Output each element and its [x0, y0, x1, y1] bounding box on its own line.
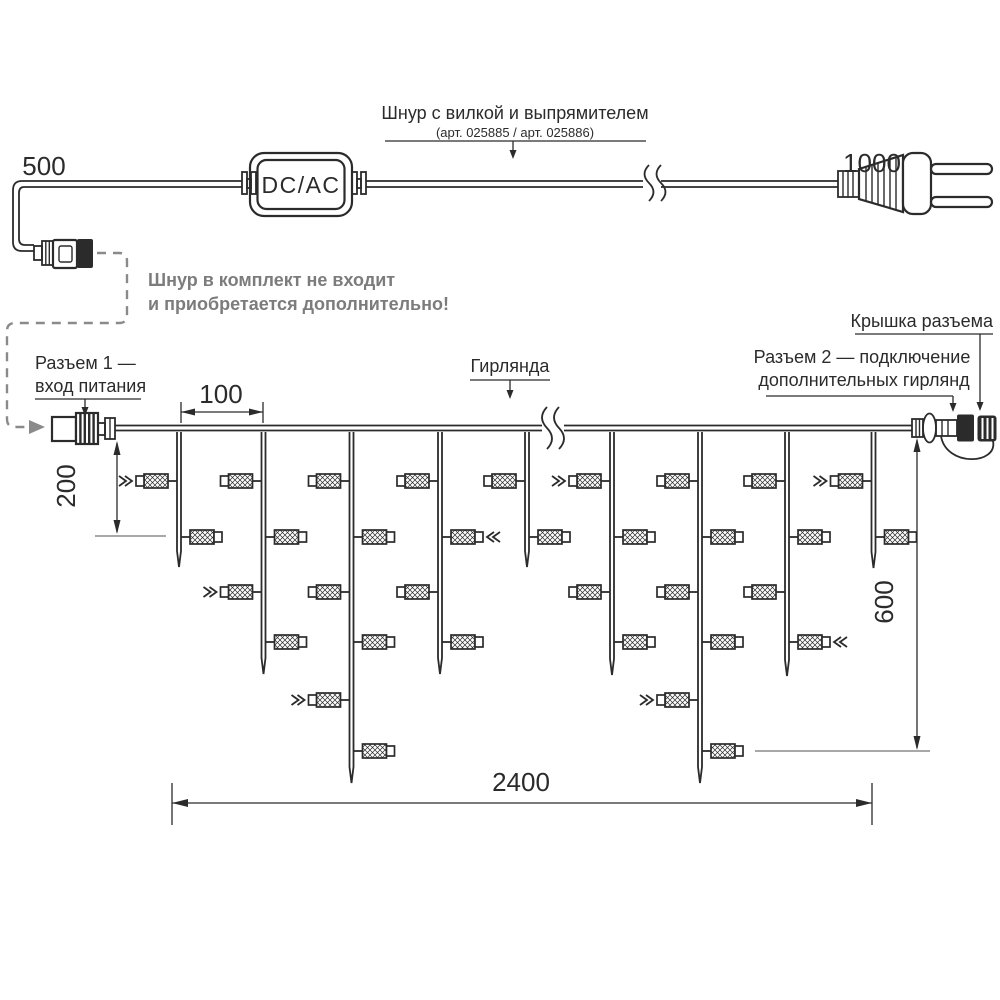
cable-gland-right-icon [352, 172, 366, 194]
connector1-callout: Разъем 1 — вход питания [35, 353, 146, 416]
dim-2400: 2400 [492, 767, 550, 797]
garland-callout: Гирлянда [470, 356, 550, 399]
connector2-label-line1: Разъем 2 — подключение [754, 347, 971, 367]
led-lamp-icon [317, 585, 341, 599]
led-lamp-icon [839, 474, 863, 488]
led-lamp-icon [752, 585, 776, 599]
lamp-cap-icon [387, 637, 395, 647]
connector1-label-line1: Разъем 1 — [35, 353, 136, 373]
diagram-page: DC/AC [0, 0, 1000, 1000]
dim-200: 200 [51, 464, 81, 507]
lamp-cap-icon [387, 532, 395, 542]
flash-marker-icon [119, 476, 132, 486]
lamp-cap-icon [299, 532, 307, 542]
led-lamp-icon [752, 474, 776, 488]
led-lamp-icon [317, 693, 341, 707]
garland-section: Разъем 1 — вход питания Гирлянда Разъем … [35, 311, 997, 825]
connector-cap-icon [978, 416, 997, 442]
flash-marker-icon [552, 476, 565, 486]
connector2-label-line2: дополнительных гирлянд [758, 370, 970, 390]
lamp-cap-icon [735, 532, 743, 542]
lamp-cap-icon [562, 532, 570, 542]
lamp-cap-icon [387, 746, 395, 756]
wire-break-symbol [542, 407, 564, 449]
led-lamp-icon [538, 530, 562, 544]
led-lamp-icon [229, 585, 253, 599]
led-lamp-icon [405, 474, 429, 488]
lamp-cap-icon [822, 637, 830, 647]
lamp-cap-icon [214, 532, 222, 542]
lamp-cap-icon [397, 587, 405, 597]
cable-break-symbol [645, 165, 666, 201]
garland-drop [814, 432, 917, 568]
cord-title: Шнур с вилкой и выпрямителем [381, 103, 648, 123]
connector2-callout: Разъем 2 — подключение дополнительных ги… [754, 347, 971, 412]
lamp-cap-icon [647, 637, 655, 647]
led-lamp-icon [798, 530, 822, 544]
lamp-cap-icon [309, 587, 317, 597]
garland-drop [484, 432, 570, 567]
garland-drops [119, 432, 917, 783]
cap-label: Крышка разъема [851, 311, 994, 331]
dcac-label: DC/AC [261, 172, 340, 198]
lamp-cap-icon [831, 476, 839, 486]
led-lamp-icon [405, 585, 429, 599]
led-lamp-icon [577, 585, 601, 599]
lamp-cap-icon [657, 695, 665, 705]
dim-1000: 1000 [843, 148, 901, 178]
power-connector-icon [34, 239, 93, 268]
cord-note-line1: Шнур в комплект не входит [148, 270, 395, 290]
lamp-cap-icon [647, 532, 655, 542]
garland-drop [744, 432, 847, 676]
led-lamp-icon [885, 530, 909, 544]
lamp-cap-icon [735, 637, 743, 647]
led-lamp-icon [798, 635, 822, 649]
flash-marker-icon [834, 637, 847, 647]
dim-100-group: 100 [181, 379, 263, 423]
led-lamp-icon [665, 693, 689, 707]
led-lamp-icon [275, 635, 299, 649]
led-lamp-icon [665, 474, 689, 488]
cord-note-line2: и приобретается дополнительно! [148, 294, 449, 314]
led-lamp-icon [665, 585, 689, 599]
garland-label: Гирлянда [471, 356, 551, 376]
garland-drop [640, 432, 743, 783]
led-lamp-icon [317, 474, 341, 488]
garland-drop [119, 432, 222, 567]
flash-marker-icon [814, 476, 827, 486]
lamp-cap-icon [569, 476, 577, 486]
led-lamp-icon [363, 530, 387, 544]
flash-marker-icon [204, 587, 217, 597]
led-lamp-icon [275, 530, 299, 544]
led-lamp-icon [492, 474, 516, 488]
drop-wire [872, 432, 876, 568]
drop-wire [525, 432, 529, 567]
dim-100: 100 [199, 379, 242, 409]
lamp-cap-icon [475, 532, 483, 542]
lamp-cap-icon [299, 637, 307, 647]
drop-wire [177, 432, 181, 567]
dim-600: 600 [869, 580, 899, 623]
drop-wire [438, 432, 442, 674]
garland-drop [397, 432, 500, 674]
lamp-cap-icon [484, 476, 492, 486]
led-lamp-icon [451, 530, 475, 544]
drop-wire [262, 432, 266, 674]
cord-title-callout: Шнур с вилкой и выпрямителем (арт. 02588… [381, 103, 648, 159]
lamp-cap-icon [909, 532, 917, 542]
garland-input-connector-icon [52, 413, 115, 444]
led-lamp-icon [190, 530, 214, 544]
garland-schematic: DC/AC [0, 0, 1000, 1000]
lamp-cap-icon [136, 476, 144, 486]
flash-marker-icon [292, 695, 305, 705]
lamp-cap-icon [657, 476, 665, 486]
drop-wire [785, 432, 789, 676]
lamp-cap-icon [397, 476, 405, 486]
dim-2400-group: 2400 [172, 767, 872, 825]
lamp-cap-icon [735, 746, 743, 756]
led-lamp-icon [451, 635, 475, 649]
garland-drop [292, 432, 395, 783]
drop-wire [698, 432, 702, 783]
drop-wire [350, 432, 354, 783]
led-lamp-icon [577, 474, 601, 488]
lamp-cap-icon [309, 695, 317, 705]
led-lamp-icon [363, 635, 387, 649]
garland-drop [204, 432, 307, 674]
led-lamp-icon [711, 744, 735, 758]
led-lamp-icon [623, 635, 647, 649]
lamp-cap-icon [569, 587, 577, 597]
led-lamp-icon [711, 530, 735, 544]
lamp-cap-icon [309, 476, 317, 486]
led-lamp-icon [623, 530, 647, 544]
led-lamp-icon [363, 744, 387, 758]
garland-drop [552, 432, 655, 675]
lamp-cap-icon [657, 587, 665, 597]
lamp-cap-icon [822, 532, 830, 542]
drop-wire [610, 432, 614, 675]
dim-500: 500 [22, 151, 65, 181]
lamp-cap-icon [475, 637, 483, 647]
flash-marker-icon [640, 695, 653, 705]
dcac-converter-box: DC/AC [242, 153, 366, 216]
cord-subtitle: (арт. 025885 / арт. 025886) [436, 125, 594, 140]
lamp-cap-icon [744, 587, 752, 597]
lamp-cap-icon [221, 476, 229, 486]
led-lamp-icon [711, 635, 735, 649]
flash-marker-icon [487, 532, 500, 542]
led-lamp-icon [144, 474, 168, 488]
led-lamp-icon [229, 474, 253, 488]
connector1-label-line2: вход питания [35, 376, 146, 396]
lamp-cap-icon [221, 587, 229, 597]
lamp-cap-icon [744, 476, 752, 486]
